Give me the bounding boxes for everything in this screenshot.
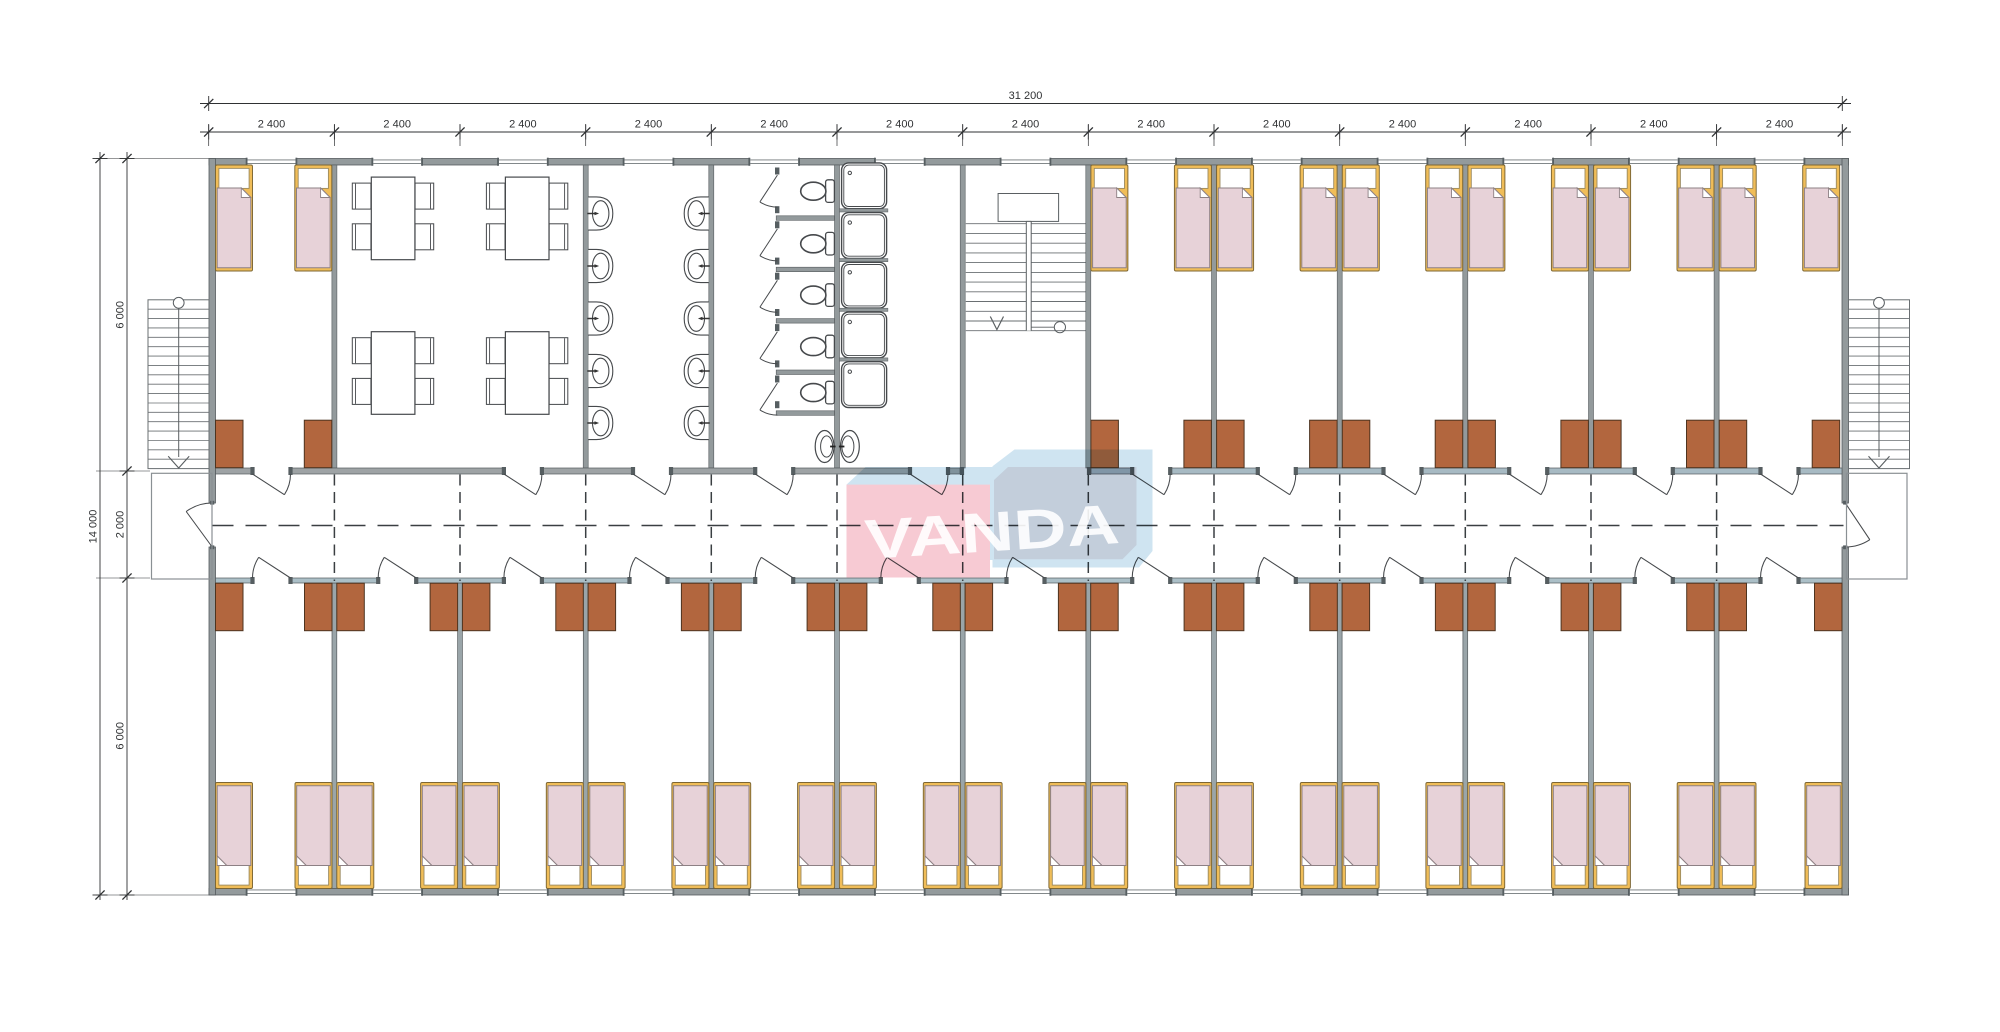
svg-text:2 400: 2 400 (1137, 119, 1165, 131)
svg-text:14 000: 14 000 (88, 510, 100, 544)
svg-text:6 000: 6 000 (115, 301, 127, 329)
svg-text:2 400: 2 400 (1766, 119, 1794, 131)
svg-text:2 400: 2 400 (258, 119, 286, 131)
svg-text:2 400: 2 400 (1514, 119, 1542, 131)
svg-text:2 400: 2 400 (635, 119, 663, 131)
svg-text:31 200: 31 200 (1009, 90, 1043, 102)
svg-text:2 000: 2 000 (115, 511, 127, 539)
svg-text:2 400: 2 400 (1640, 119, 1668, 131)
svg-text:2 400: 2 400 (886, 119, 914, 131)
svg-text:2 400: 2 400 (1263, 119, 1291, 131)
svg-text:2 400: 2 400 (383, 119, 411, 131)
svg-text:2 400: 2 400 (760, 119, 788, 131)
svg-text:2 400: 2 400 (1389, 119, 1417, 131)
svg-text:2 400: 2 400 (509, 119, 537, 131)
svg-text:6 000: 6 000 (115, 722, 127, 750)
svg-text:2 400: 2 400 (1012, 119, 1040, 131)
